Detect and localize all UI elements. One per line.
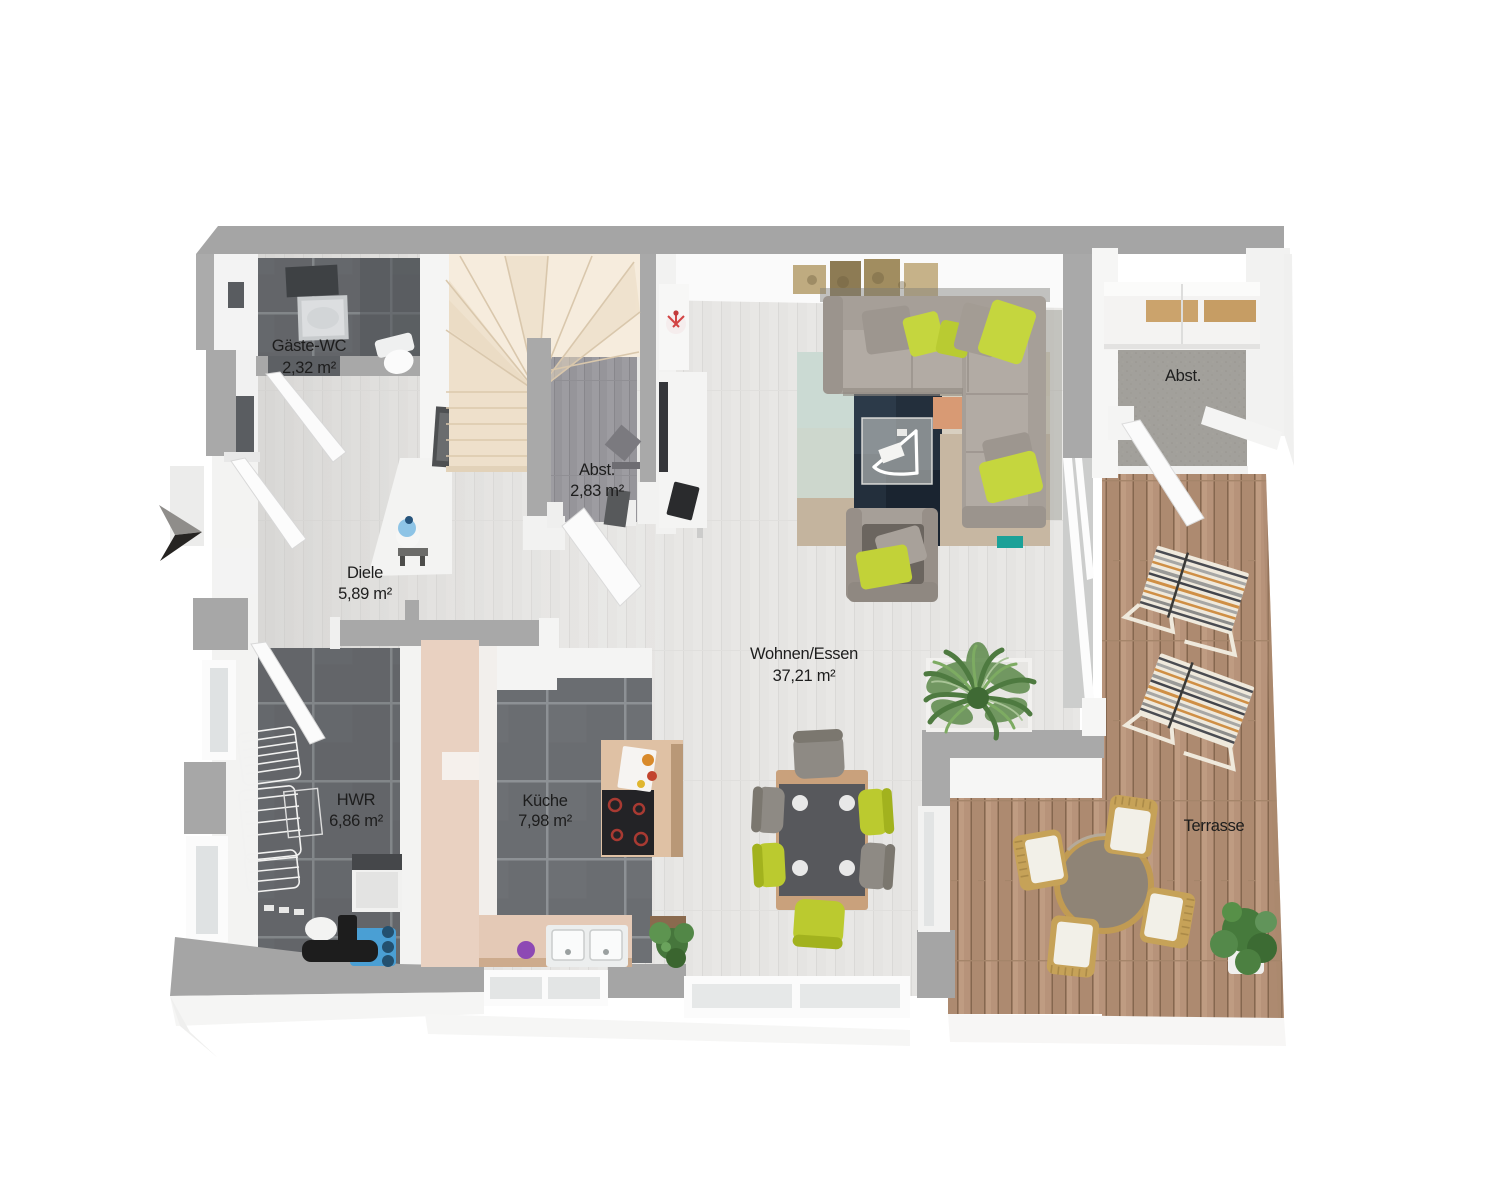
svg-text:Wohnen/Essen: Wohnen/Essen — [750, 645, 858, 663]
svg-text:6,86 m²: 6,86 m² — [329, 812, 384, 830]
svg-text:Terrasse: Terrasse — [1184, 817, 1245, 835]
svg-text:Gäste-WC: Gäste-WC — [272, 337, 347, 355]
svg-text:2,32 m²: 2,32 m² — [282, 359, 337, 377]
svg-text:HWR: HWR — [337, 791, 376, 809]
svg-text:7,98 m²: 7,98 m² — [518, 812, 573, 830]
svg-text:Küche: Küche — [522, 792, 567, 810]
svg-text:Abst.: Abst. — [579, 461, 615, 479]
svg-text:5,89 m²: 5,89 m² — [338, 585, 393, 603]
svg-text:37,21 m²: 37,21 m² — [773, 667, 837, 685]
svg-text:Diele: Diele — [347, 564, 383, 582]
svg-text:Abst.: Abst. — [1165, 367, 1201, 385]
svg-text:2,83 m²: 2,83 m² — [570, 482, 625, 500]
